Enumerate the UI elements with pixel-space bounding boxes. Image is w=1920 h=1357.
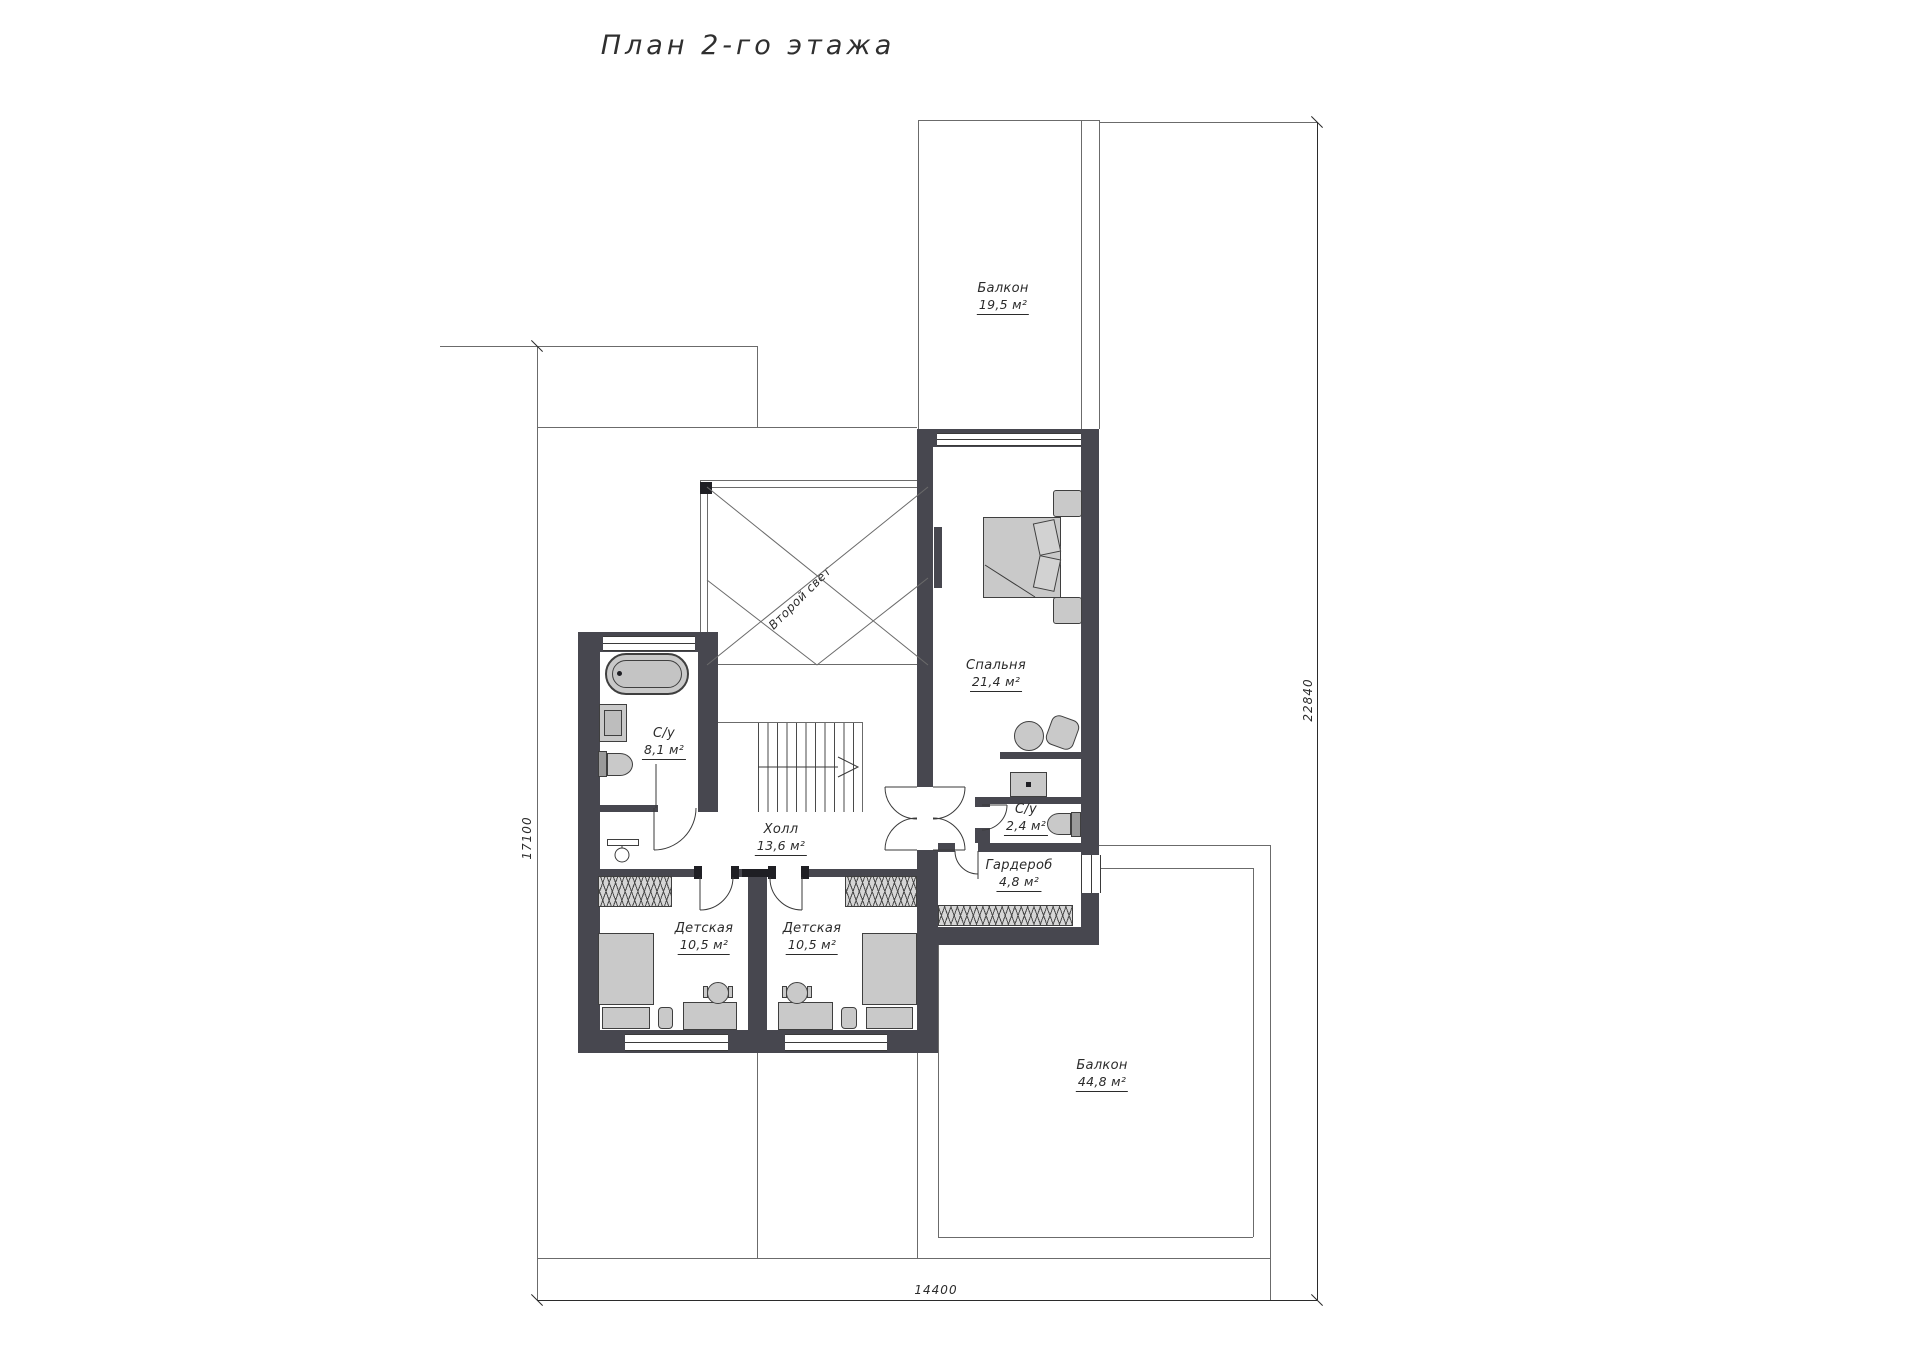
wall-su-small-left-a (975, 797, 990, 807)
dresser-knob (1026, 782, 1031, 787)
chair-armrest (807, 986, 812, 998)
room-label-bath-small: С/у 2,4 м² (1004, 802, 1048, 836)
nightstand-kids1 (658, 1007, 673, 1029)
wall-wardrobe-top-b (978, 843, 1081, 852)
door-wardrobe[interactable] (955, 851, 978, 879)
second-light-outer-left (700, 480, 701, 632)
room-area: 4,8 м² (997, 874, 1041, 892)
room-name: Гардероб (985, 858, 1052, 874)
room-area: 10,5 м² (786, 937, 838, 955)
wall-su-small-left-b (975, 828, 990, 843)
balcony-bottom-outer-left (917, 1053, 918, 1258)
witness-line-top-left (440, 346, 757, 347)
window-kids2 (785, 1034, 887, 1051)
room-label-wardrobe: Гардероб 4,8 м² (985, 858, 1052, 892)
room-name: Спальня (966, 658, 1026, 674)
bed-kids2 (862, 933, 917, 1005)
room-label-hall: Холл 13,6 м² (755, 822, 807, 856)
nightstand (1053, 490, 1082, 517)
wall-bath-bottom (578, 805, 658, 812)
nightstand-kids2 (841, 1007, 857, 1029)
balcony-top-outline-right (1081, 120, 1082, 429)
room-area: 21,4 м² (970, 674, 1022, 692)
balcony-bottom-inner-left (938, 945, 939, 1237)
dimension-left: 17100 (520, 816, 534, 859)
dressing-table (1000, 752, 1085, 759)
room-label-bath-main: С/у 8,1 м² (642, 726, 686, 760)
witness-line-top-right (1099, 122, 1317, 123)
chair-kids2 (786, 982, 808, 1004)
wardrobe-closet-main (938, 905, 1073, 926)
right-dimension-line[interactable] (1317, 122, 1318, 1300)
toilet-tank (1071, 812, 1081, 837)
room-area: 13,6 м² (755, 838, 807, 856)
balcony-bottom-inner-right (1253, 868, 1254, 1237)
balcony-top-outline-top (918, 120, 1099, 121)
balcony-top-outline-edge (1099, 120, 1100, 429)
door-jamb (731, 866, 739, 879)
nightstand (1053, 597, 1082, 624)
wall-wardrobe-top-a (938, 843, 955, 852)
wardrobe-closet-kids2 (845, 876, 917, 907)
chair-armrest (782, 986, 787, 998)
desk-kids1 (683, 1002, 737, 1030)
window-kids1 (625, 1034, 728, 1051)
toilet-tank (598, 751, 607, 777)
balcony-bottom-outer-right (1270, 845, 1271, 1258)
room-area: 19,5 м² (977, 297, 1029, 315)
second-light-outer-top (700, 480, 917, 481)
left-dimension-line[interactable] (537, 346, 538, 1300)
room-name: С/у (642, 726, 686, 742)
room-name: Детская (783, 921, 842, 937)
lower-floor-outline-v1 (757, 346, 758, 427)
room-label-kids1: Детская 10,5 м² (675, 921, 734, 955)
bed-pillow-kids1 (602, 1007, 650, 1029)
stairs-right-edge (862, 722, 863, 812)
second-light-corner-marker (700, 482, 712, 494)
dimension-right: 22840 (1301, 678, 1315, 721)
balcony-top-outline-left (918, 120, 919, 429)
room-area: 44,8 м² (1076, 1074, 1128, 1092)
bathtub-inner (612, 660, 682, 688)
lower-floor-outline-h1 (537, 427, 917, 428)
room-name: Балкон (977, 281, 1029, 297)
toilet-bowl (607, 753, 633, 776)
room-label-balcony-bottom: Балкон 44,8 м² (1076, 1058, 1128, 1092)
wall-wardrobe-bottom (938, 927, 1099, 945)
balcony-bottom-inner-top (1099, 868, 1253, 869)
terrace-outline-h (537, 1258, 1270, 1259)
wardrobe-closet-kids1 (598, 876, 672, 907)
window-wardrobe (1081, 855, 1101, 893)
page-title: План 2-го этажа (601, 30, 896, 61)
chair-armrest (728, 986, 733, 998)
window-bedroom (937, 433, 1081, 446)
room-label-kids2: Детская 10,5 м² (783, 921, 842, 955)
bathtub-faucet (617, 671, 622, 676)
stool (1014, 721, 1044, 751)
stairs[interactable] (758, 722, 862, 812)
plan-linework (0, 0, 1920, 1357)
terrace-outline-v (757, 1053, 758, 1258)
door-hall-bedroom-double[interactable] (885, 787, 965, 850)
bed-pillow-kids2 (866, 1007, 913, 1029)
bedroom-wall-niche (934, 527, 942, 588)
room-name: Холл (755, 822, 807, 838)
room-area: 8,1 м² (642, 742, 686, 760)
door-kids1[interactable] (700, 877, 733, 910)
dimension-bottom: 14400 (914, 1283, 957, 1297)
stairs-top-edge (718, 722, 862, 723)
room-area: 2,4 м² (1004, 818, 1048, 836)
hall-fixture (615, 848, 629, 862)
room-label-balcony-top: Балкон 19,5 м² (977, 281, 1029, 315)
wall-kids-partition-cap (742, 869, 771, 877)
wall-bath-right (698, 632, 718, 812)
bottom-dimension-line[interactable] (537, 1300, 1317, 1301)
door-kids2[interactable] (770, 877, 802, 910)
desk-kids2 (778, 1002, 833, 1030)
witness-line-bottom-right (1270, 1258, 1271, 1300)
door-bath[interactable] (654, 764, 696, 850)
chair-kids1 (707, 982, 729, 1004)
wall-kids-partition (748, 877, 767, 1053)
window-bath (603, 636, 695, 651)
wall-bedroom-left-lower (917, 850, 938, 1053)
armchair (1044, 713, 1082, 752)
room-name: Детская (675, 921, 734, 937)
wall-bedroom-left-upper (917, 429, 933, 787)
door-jamb (801, 866, 809, 879)
bed-kids1 (598, 933, 654, 1005)
toilet-bowl (1047, 813, 1071, 835)
balcony-bottom-outer-top (1099, 845, 1270, 846)
room-label-bedroom: Спальня 21,4 м² (966, 658, 1026, 692)
wall-left-exterior (578, 632, 600, 1053)
room-area: 10,5 м² (678, 937, 730, 955)
room-name: С/у (1004, 802, 1048, 818)
balcony-bottom-inner-bottom (938, 1237, 1253, 1238)
floor-plan: План 2-го этажа 22840 17100 14400 Второй… (0, 0, 1920, 1357)
chair-armrest (703, 986, 708, 998)
door-jamb (694, 866, 702, 879)
hall-shelf (607, 839, 639, 846)
washbasin-bowl (604, 710, 622, 736)
room-name: Балкон (1076, 1058, 1128, 1074)
